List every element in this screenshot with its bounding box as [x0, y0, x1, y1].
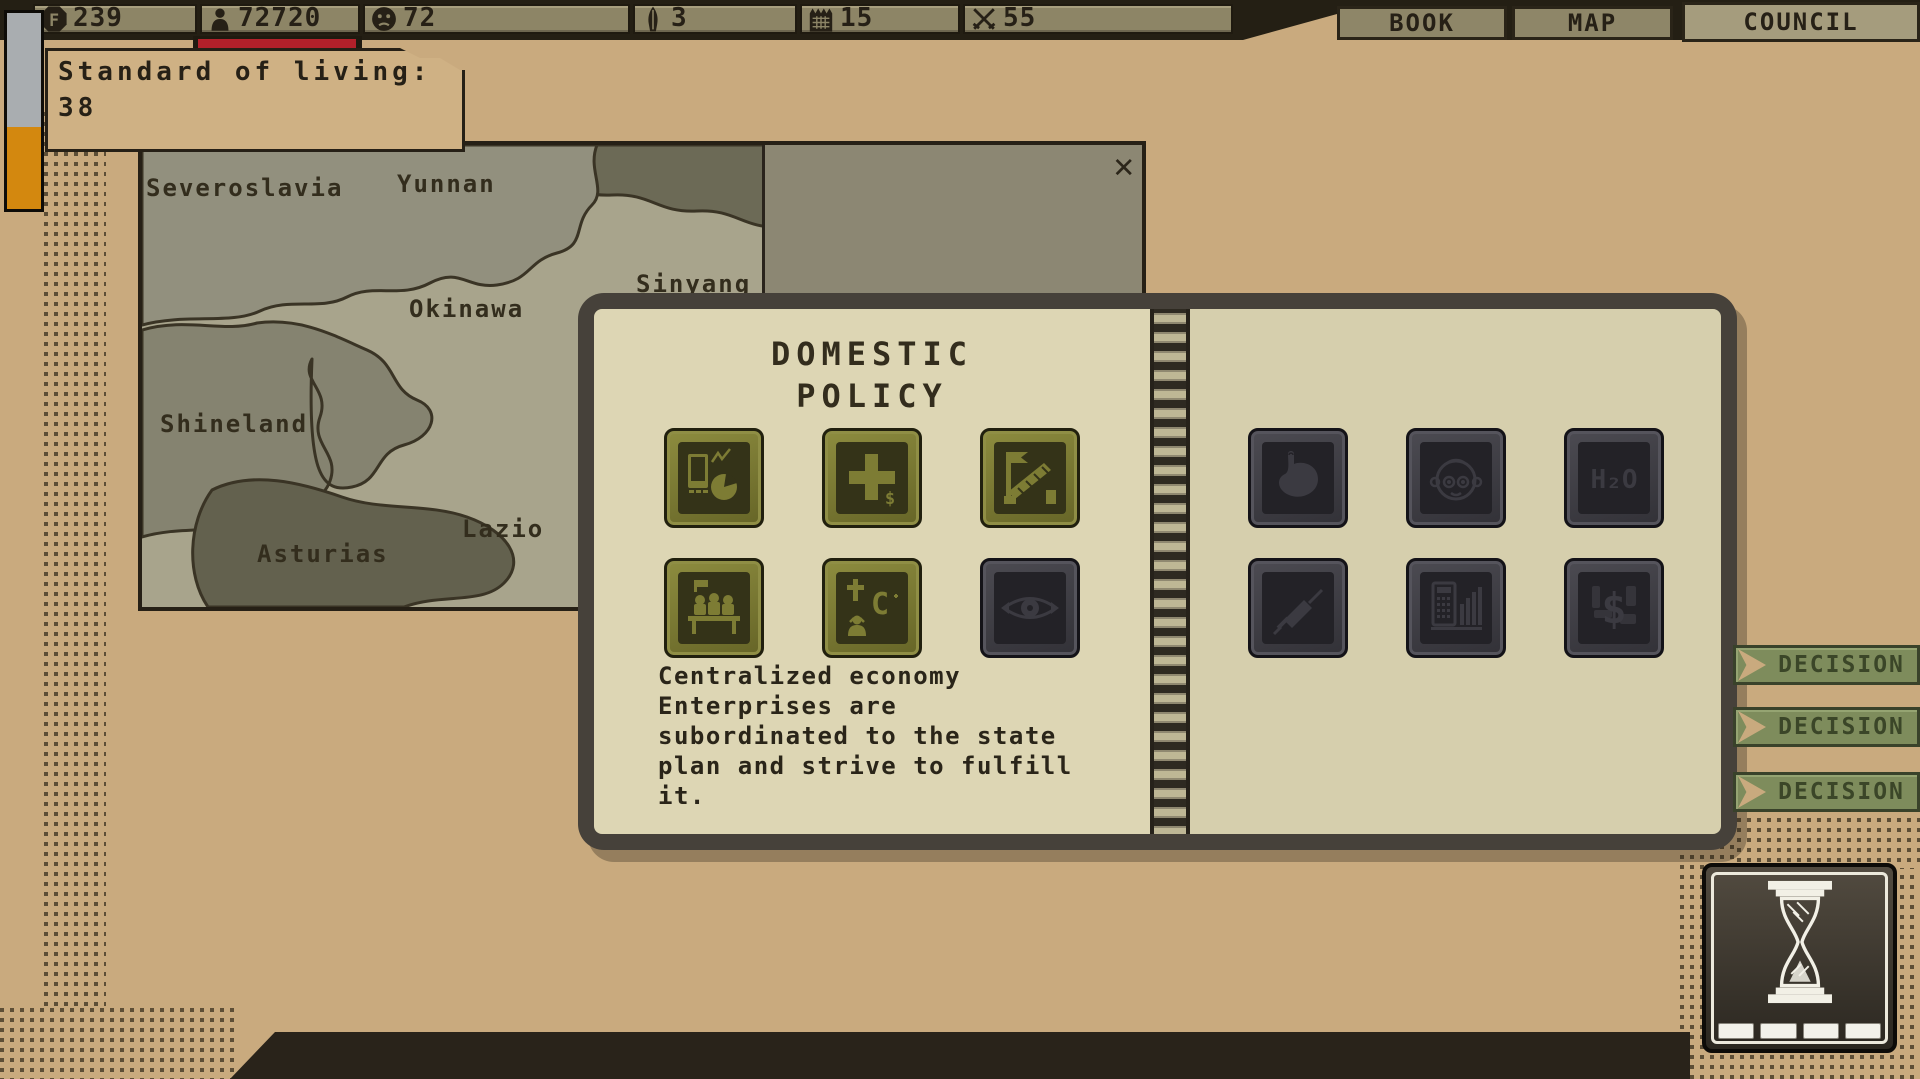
right-policy-row-2: $ [1190, 558, 1721, 658]
stat-calendar: 15 [800, 4, 960, 34]
map-region-label-shineland: Shineland [160, 410, 308, 438]
decision-arrow-icon [1738, 776, 1766, 808]
population-value: 72720 [238, 5, 321, 31]
close-icon[interactable]: ✕ [1114, 147, 1134, 185]
dot-pattern-bottom-left [0, 1008, 236, 1079]
speed-segment [1718, 1023, 1754, 1039]
book-spiral-binding [1150, 309, 1190, 834]
dot-pattern-right [1737, 808, 1920, 868]
approval-value: 72 [403, 5, 436, 31]
missiles-value: 3 [671, 5, 688, 31]
decision-label: DECISION [1766, 779, 1917, 805]
book-page-left: DOMESTIC POLICY [594, 309, 1150, 834]
book-title: DOMESTIC POLICY [594, 333, 1150, 417]
budget-dollar-glyph: $ [885, 489, 895, 509]
map-side-panel: ✕ [762, 145, 1142, 304]
tab-map[interactable]: MAP [1512, 6, 1673, 40]
map-region-label-okinawa: Okinawa [409, 295, 524, 323]
statistics-icon[interactable] [1406, 558, 1506, 658]
stat-missiles: 3 [633, 4, 797, 34]
military-value: 55 [1003, 5, 1036, 31]
speed-segment [1845, 1023, 1881, 1039]
book-title-line1: DOMESTIC [594, 333, 1150, 375]
top-resource-bar: F 239 72720 72 3 [0, 0, 1920, 40]
calendar-value: 15 [840, 5, 873, 31]
missile-icon [640, 5, 666, 33]
decision-button-3[interactable]: DECISION [1733, 772, 1920, 812]
policy-description-line: subordinated to the state [658, 721, 1073, 751]
decision-label: DECISION [1766, 652, 1917, 678]
hourglass-icon [1756, 879, 1844, 1005]
game-screen: F 239 72720 72 3 [0, 0, 1920, 1079]
background-wedge [1243, 14, 1337, 40]
speed-segment [1760, 1023, 1796, 1039]
stat-approval: 72 [363, 4, 630, 34]
policy-description-line: Enterprises are [658, 691, 1073, 721]
mood-face-icon [370, 5, 398, 33]
tab-council[interactable]: COUNCIL [1682, 2, 1920, 42]
time-speed-segments[interactable] [1718, 1023, 1881, 1039]
calendar-icon [807, 5, 835, 33]
svg-text:F: F [49, 10, 59, 30]
decision-arrow-icon [1738, 649, 1766, 681]
bottom-dark-band [230, 1032, 1690, 1079]
child-icon[interactable] [1406, 428, 1506, 528]
crossed-swords-icon [970, 5, 998, 33]
religion-crescent-glyph: C [871, 587, 889, 622]
budget-plus-icon[interactable]: $ [822, 428, 922, 528]
map-region-label-lazio: Lazio [462, 515, 544, 543]
coin-f-icon: F [40, 5, 68, 33]
policy-description-line: it. [658, 781, 1073, 811]
map-region-label-asturias: Asturias [257, 540, 389, 568]
policy-description-line: plan and strive to fulfill [658, 751, 1073, 781]
stat-population: 72720 [200, 4, 360, 34]
book-page-right: H₂O [1190, 309, 1721, 834]
stat-military: 55 [963, 4, 1233, 34]
finance-icon[interactable]: $ [1564, 558, 1664, 658]
decision-button-2[interactable]: DECISION [1733, 707, 1920, 747]
decision-button-1[interactable]: DECISION [1733, 645, 1920, 685]
policy-description: Centralized economy Enterprises are subo… [658, 661, 1073, 811]
standard-of-living-tooltip: Standard of living: 38 [45, 48, 465, 152]
finance-dollar-glyph: $ [1601, 584, 1626, 633]
side-gauge-fill [7, 127, 41, 209]
border-checkpoint-icon[interactable] [980, 428, 1080, 528]
side-gauge [4, 10, 44, 212]
left-policy-row-1: $ [594, 428, 1150, 528]
decision-label: DECISION [1766, 714, 1917, 740]
policy-description-line: Centralized economy [658, 661, 1073, 691]
stomach-icon[interactable] [1248, 428, 1348, 528]
tooltip-title: Standard of living: [58, 57, 462, 87]
speed-segment [1803, 1023, 1839, 1039]
tab-book[interactable]: BOOK [1337, 6, 1507, 40]
surveillance-eye-icon[interactable] [980, 558, 1080, 658]
map-region-label-severoslavia: Severoslavia [146, 174, 343, 202]
treasury-value: 239 [73, 5, 123, 31]
stat-treasury: F 239 [33, 4, 197, 34]
dot-pattern-left [44, 112, 106, 1079]
religion-icon[interactable]: C [822, 558, 922, 658]
tooltip-value: 38 [58, 93, 462, 123]
assembly-icon[interactable] [664, 558, 764, 658]
water-icon[interactable]: H₂O [1564, 428, 1664, 528]
decision-arrow-icon [1738, 711, 1766, 743]
population-icon [207, 5, 233, 33]
time-control-button[interactable] [1702, 863, 1897, 1053]
left-policy-row-2: C [594, 558, 1150, 658]
syringe-icon[interactable] [1248, 558, 1348, 658]
right-policy-row-1: H₂O [1190, 428, 1721, 528]
book-title-line2: POLICY [594, 375, 1150, 417]
policy-book: DOMESTIC POLICY [578, 293, 1737, 850]
map-region-label-yunnan: Yunnan [397, 170, 496, 198]
economy-icon[interactable] [664, 428, 764, 528]
water-h2o-glyph: H₂O [1590, 465, 1637, 495]
